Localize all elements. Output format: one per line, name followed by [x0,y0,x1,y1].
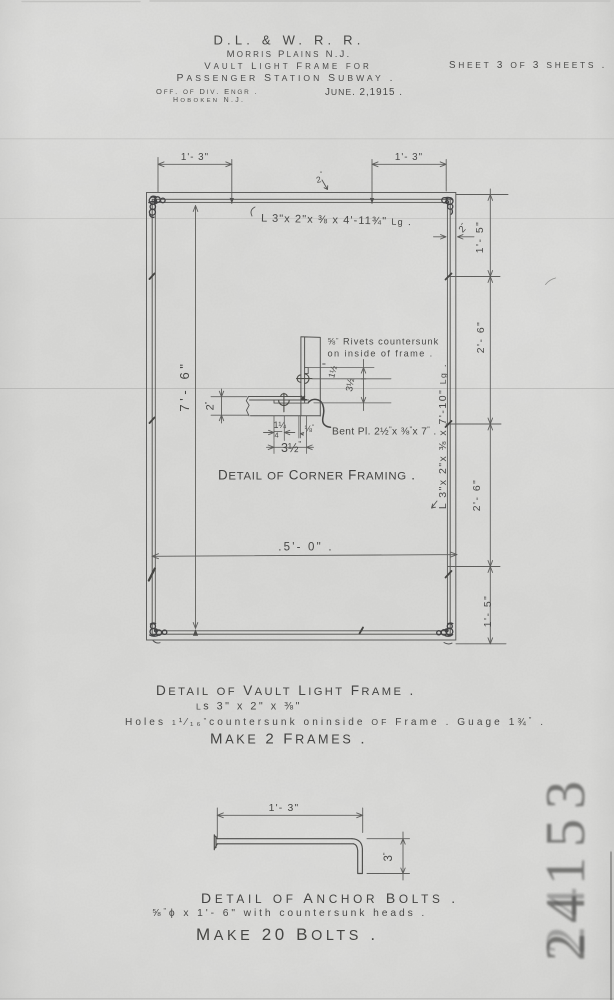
svg-text:MAKE 2 FRAMES .: MAKE 2 FRAMES . [210,731,367,748]
svg-text:3": 3" [383,852,395,861]
svg-text:DETAIL OF VAULT LIGHT FRAME .: DETAIL OF VAULT LIGHT FRAME . [156,683,416,698]
svg-text:3½": 3½" [281,440,301,455]
svg-text:": " [320,172,322,178]
svg-text:⅝" Rivets countersunk: ⅝" Rivets countersunk [328,337,440,347]
svg-text:7'- 6": 7'- 6" [177,360,192,411]
svg-text:1¼: 1¼ [274,420,287,430]
svg-text:MAKE 20 BOLTS .: MAKE 20 BOLTS . [196,925,379,944]
svg-text:D.L. & W. R. R.: D.L. & W. R. R. [213,33,364,48]
svg-text:L 3"x 2"x ⅜ x 4'-11¾" Lg .: L 3"x 2"x ⅜ x 4'-11¾" Lg . [261,213,412,229]
svg-text:1½: 1½ [326,364,339,379]
svg-text:24: 24 [535,878,597,954]
svg-text:1'- 3": 1'- 3" [395,152,423,163]
svg-text:L 3"x 2"x ⅜ x 7'-10" Lg .: L 3"x 2"x ⅜ x 7'-10" Lg . [437,363,449,509]
svg-text:DETAIL OF ANCHOR BOLTS .: DETAIL OF ANCHOR BOLTS . [201,890,459,906]
svg-text:⅝"ϕ x 1'- 6" with countersunk: ⅝"ϕ x 1'- 6" with countersunk heads . [152,908,427,919]
svg-text:JUNE. 2,1915 .: JUNE. 2,1915 . [325,87,403,98]
svg-text:2'- 6": 2'- 6" [472,479,483,512]
svg-text:2": 2" [457,222,471,236]
svg-text:HOBOKEN N.J.: HOBOKEN N.J. [173,97,245,104]
svg-text:3½: 3½ [344,377,357,392]
svg-text:=: = [322,361,326,368]
svg-text:MORRIS PLAINS N.J.: MORRIS PLAINS N.J. [227,49,352,60]
svg-text:OFF. OF DIV. ENGR .: OFF. OF DIV. ENGR . [156,87,258,96]
svg-text:Holes 1¹⁄₁₆"countersunk oninsi: Holes 1¹⁄₁₆"countersunk oninside OF Fram… [125,717,546,728]
svg-text:SHEET 3 OF 3 SHEETS .: SHEET 3 OF 3 SHEETS . [449,60,607,71]
svg-text:1'- 5": 1'- 5" [475,221,486,254]
svg-text:on inside of frame .: on inside of frame . [328,349,434,359]
svg-text:1'- 5": 1'- 5" [483,595,494,628]
svg-text:2": 2" [205,401,217,410]
svg-text:Bent Pl. 2½"x ⅜"x 7" .: Bent Pl. 2½"x ⅜"x 7" . [332,427,437,438]
svg-text:⅛": ⅛" [305,424,315,434]
svg-text:1'- 3": 1'- 3" [181,152,209,163]
svg-text:VAULT LIGHT FRAME FOR: VAULT LIGHT FRAME FOR [204,61,372,72]
svg-text:1'- 3": 1'- 3" [269,803,300,814]
svg-text:DETAIL OF CORNER FRAMING .: DETAIL OF CORNER FRAMING . [218,468,416,483]
svg-text:Ls 3" x 2" x ⅜": Ls 3" x 2" x ⅜" [196,701,302,713]
svg-text:2'- 6": 2'- 6" [476,321,487,354]
svg-text:.5'- 0" .: .5'- 0" . [278,542,333,554]
svg-text:PASSENGER STATION SUBWAY .: PASSENGER STATION SUBWAY . [177,73,396,84]
